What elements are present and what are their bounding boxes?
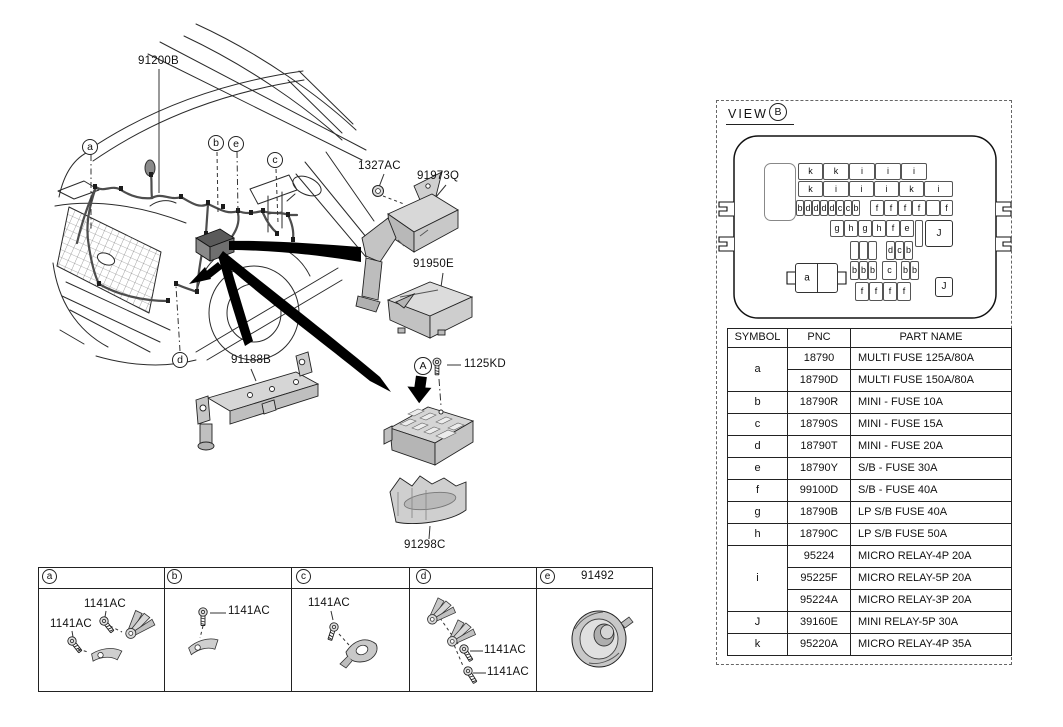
fuse-cell-f: f — [912, 200, 926, 216]
fuse-cell-g: g — [830, 220, 844, 237]
fuse-cell-blank — [915, 220, 923, 247]
pnc-cell: 18790 — [788, 348, 851, 370]
strip-callout-b: b — [167, 569, 182, 584]
callout-e: e — [228, 136, 244, 152]
parts-diagram-page: 91200B 1327AC 91973Q 91950E 1125KD 91188… — [0, 0, 1063, 727]
fastener-part-label: 1141AC — [487, 666, 529, 678]
fuse-cell-k: k — [798, 163, 823, 180]
fuse-cell-blank — [868, 241, 877, 260]
pnc-cell: 18790R — [788, 392, 851, 414]
fuse-cell-f: f — [884, 200, 898, 216]
fuse-cell-f: f — [898, 200, 912, 216]
symbol-table-row: k95220AMICRO RELAY-4P 35A — [728, 634, 1012, 656]
fuse-cell-b: b — [852, 200, 860, 216]
part-name-cell: S/B - FUSE 30A — [851, 458, 1012, 480]
pnc-cell: 18790C — [788, 524, 851, 546]
pnc-cell: 99100D — [788, 480, 851, 502]
view-title-underline — [726, 124, 794, 125]
fuse-cell-blank — [850, 241, 859, 260]
fuse-cell-i: i — [924, 181, 953, 197]
part-name-cell: MICRO RELAY-4P 35A — [851, 634, 1012, 656]
fusebox-body-sketch — [384, 407, 473, 465]
strip-divider — [409, 568, 410, 691]
pnc-cell: 95224A — [788, 590, 851, 612]
fuse-cell-h: h — [872, 220, 886, 237]
fastener-part-label: 1141AC — [484, 644, 526, 656]
strip-callout-a: a — [42, 569, 57, 584]
fuse-cell-i: i — [874, 181, 899, 197]
symbol-cell: h — [728, 524, 788, 546]
symbol-table-row: i95224MICRO RELAY-4P 20A — [728, 546, 1012, 568]
fuse-cell-b: b — [796, 200, 804, 216]
fuse-cell-f: f — [940, 200, 953, 216]
nut-part-label: 1327AC — [358, 160, 401, 172]
part-name-cell: LP S/B FUSE 50A — [851, 524, 1012, 546]
pnc-cell: 95225F — [788, 568, 851, 590]
fuse-cell-f: f — [886, 220, 900, 237]
fuse-cell-f: f — [869, 282, 883, 301]
symbol-cell: k — [728, 634, 788, 656]
fastener-part-label: 1141AC — [228, 605, 270, 617]
symbol-cell: J — [728, 612, 788, 634]
symbol-table-header: PNC — [788, 329, 851, 348]
fuse-cell-k: k — [899, 181, 924, 197]
fuse-cell-i: i — [849, 181, 874, 197]
fuse-cell-f: f — [883, 282, 897, 301]
fuse-cell-d: d — [886, 241, 895, 260]
fuse-cell-e: e — [900, 220, 914, 237]
fuse-cell-f: f — [855, 282, 869, 301]
fuse-cell-h: h — [844, 220, 858, 237]
symbol-cell: f — [728, 480, 788, 502]
view-letter-badge: B — [769, 103, 787, 121]
fuse-cell-i: i — [875, 163, 901, 180]
strip-divider — [291, 568, 292, 691]
fuse-cell-d: d — [804, 200, 812, 216]
fuse-cell-b: b — [850, 261, 859, 280]
fusebox-blank-slot — [764, 163, 796, 221]
part-name-cell: MULTI FUSE 125A/80A — [851, 348, 1012, 370]
front-bracket-sketch — [196, 352, 318, 450]
fastener-part-label: 1141AC — [50, 618, 92, 630]
symbol-cell: i — [728, 546, 788, 612]
symbol-table-row: c18790SMINI - FUSE 15A — [728, 414, 1012, 436]
part-name-cell: MICRO RELAY-4P 20A — [851, 546, 1012, 568]
symbol-table-row: e18790YS/B - FUSE 30A — [728, 458, 1012, 480]
symbol-table-header: PART NAME — [851, 329, 1012, 348]
fastener-part-label: 1141AC — [308, 597, 350, 609]
symbol-table-row: g18790BLP S/B FUSE 40A — [728, 502, 1012, 524]
fuse-cell-k: k — [798, 181, 823, 197]
lower-cover-sketch — [390, 476, 466, 524]
fuse-cell-g: g — [858, 220, 872, 237]
fuse-cell-c: c — [895, 241, 904, 260]
arrow-to-bracket — [229, 241, 361, 262]
part-name-cell: MULTI FUSE 150A/80A — [851, 370, 1012, 392]
callout-c: c — [267, 152, 283, 168]
symbol-table-row: d18790TMINI - FUSE 20A — [728, 436, 1012, 458]
part-name-cell: MICRO RELAY-5P 20A — [851, 568, 1012, 590]
fuse-cell-c: c — [844, 200, 852, 216]
fuse-cell-b: b — [859, 261, 868, 280]
symbol-cell: d — [728, 436, 788, 458]
arrow-a-shaft — [414, 376, 427, 389]
pnc-cell: 18790Y — [788, 458, 851, 480]
fuse-cell-b: b — [868, 261, 877, 280]
fastener-part-label: 91492 — [581, 570, 614, 582]
fuse-cell-J: J — [925, 220, 953, 247]
symbol-table-row: b18790RMINI - FUSE 10A — [728, 392, 1012, 414]
callout-a: a — [82, 139, 98, 155]
fuse-cell-i: i — [823, 181, 849, 197]
upper-bracket-part-label: 91973Q — [417, 170, 459, 182]
symbol-table-row: h18790CLP S/B FUSE 50A — [728, 524, 1012, 546]
callout-d: d — [172, 352, 188, 368]
fuse-cell-d: d — [828, 200, 836, 216]
fuse-cell-c: c — [882, 261, 897, 280]
arrow-a-head — [405, 385, 431, 405]
pnc-cell: 39160E — [788, 612, 851, 634]
pnc-cell: 18790B — [788, 502, 851, 524]
pnc-cell: 95220A — [788, 634, 851, 656]
front-bracket-part-label: 91188B — [231, 354, 271, 366]
part-name-cell: MINI RELAY-5P 30A — [851, 612, 1012, 634]
mounting-bolt-part-label: 1125KD — [464, 358, 506, 370]
symbol-table-row: f99100DS/B - FUSE 40A — [728, 480, 1012, 502]
fuse-cell-f: f — [897, 282, 911, 301]
fuse-cell-b: b — [910, 261, 919, 280]
fuse-cell-k: k — [823, 163, 849, 180]
mounting-bolt-sketch — [433, 358, 441, 375]
fastener-strip — [38, 567, 653, 692]
battery-label: a — [798, 273, 816, 284]
part-name-cell: MINI - FUSE 20A — [851, 436, 1012, 458]
symbol-cell: g — [728, 502, 788, 524]
lower-cover-part-label: 91298C — [404, 539, 445, 551]
strip-divider — [536, 568, 537, 691]
fuse-cell-i: i — [849, 163, 875, 180]
symbol-cell: e — [728, 458, 788, 480]
fuse-cell-b: b — [904, 241, 913, 260]
callout-assembly-a: A — [414, 357, 432, 375]
part-name-cell: LP S/B FUSE 40A — [851, 502, 1012, 524]
part-name-cell: MINI - FUSE 15A — [851, 414, 1012, 436]
pnc-cell: 18790D — [788, 370, 851, 392]
pnc-cell: 18790T — [788, 436, 851, 458]
fuse-cell-f: f — [870, 200, 884, 216]
upper-cover-sketch — [388, 282, 472, 338]
symbol-table-header: SYMBOL — [728, 329, 788, 348]
strip-callout-e: e — [540, 569, 555, 584]
symbol-cell: b — [728, 392, 788, 414]
fuse-cell-blank — [859, 241, 868, 260]
view-title: VIEW — [728, 107, 768, 121]
battery-divider — [817, 264, 818, 292]
fuse-cell-b: b — [901, 261, 910, 280]
part-name-cell: MICRO RELAY-3P 20A — [851, 590, 1012, 612]
fusebox-battery-block: a — [795, 263, 838, 293]
pnc-cell: 95224 — [788, 546, 851, 568]
symbol-table-row: a18790MULTI FUSE 125A/80A — [728, 348, 1012, 370]
fuse-cell-c: c — [836, 200, 844, 216]
upper-cover-part-label: 91950E — [413, 258, 454, 270]
symbol-cell: c — [728, 414, 788, 436]
car-sketch — [53, 24, 374, 365]
fuse-cell-J: J — [935, 277, 953, 297]
strip-callout-c: c — [296, 569, 311, 584]
strip-header-line — [39, 588, 652, 589]
symbol-table-header-row: SYMBOLPNCPART NAME — [728, 329, 1012, 348]
part-name-cell: S/B - FUSE 40A — [851, 480, 1012, 502]
symbol-table-row: J39160EMINI RELAY-5P 30A — [728, 612, 1012, 634]
fastener-part-label: 1141AC — [84, 598, 126, 610]
nut-sketch — [373, 186, 384, 197]
fuse-cell-blank — [926, 200, 940, 216]
fuse-cell-d: d — [820, 200, 828, 216]
pnc-cell: 18790S — [788, 414, 851, 436]
harness-part-label: 91200B — [138, 55, 179, 67]
part-name-cell: MINI - FUSE 10A — [851, 392, 1012, 414]
callout-b: b — [208, 135, 224, 151]
symbol-cell: a — [728, 348, 788, 392]
strip-divider — [164, 568, 165, 691]
fuse-cell-i: i — [901, 163, 927, 180]
fuse-cell-d: d — [812, 200, 820, 216]
strip-callout-d: d — [416, 569, 431, 584]
fuse-symbol-table: SYMBOLPNCPART NAME a18790MULTI FUSE 125A… — [727, 328, 1012, 656]
